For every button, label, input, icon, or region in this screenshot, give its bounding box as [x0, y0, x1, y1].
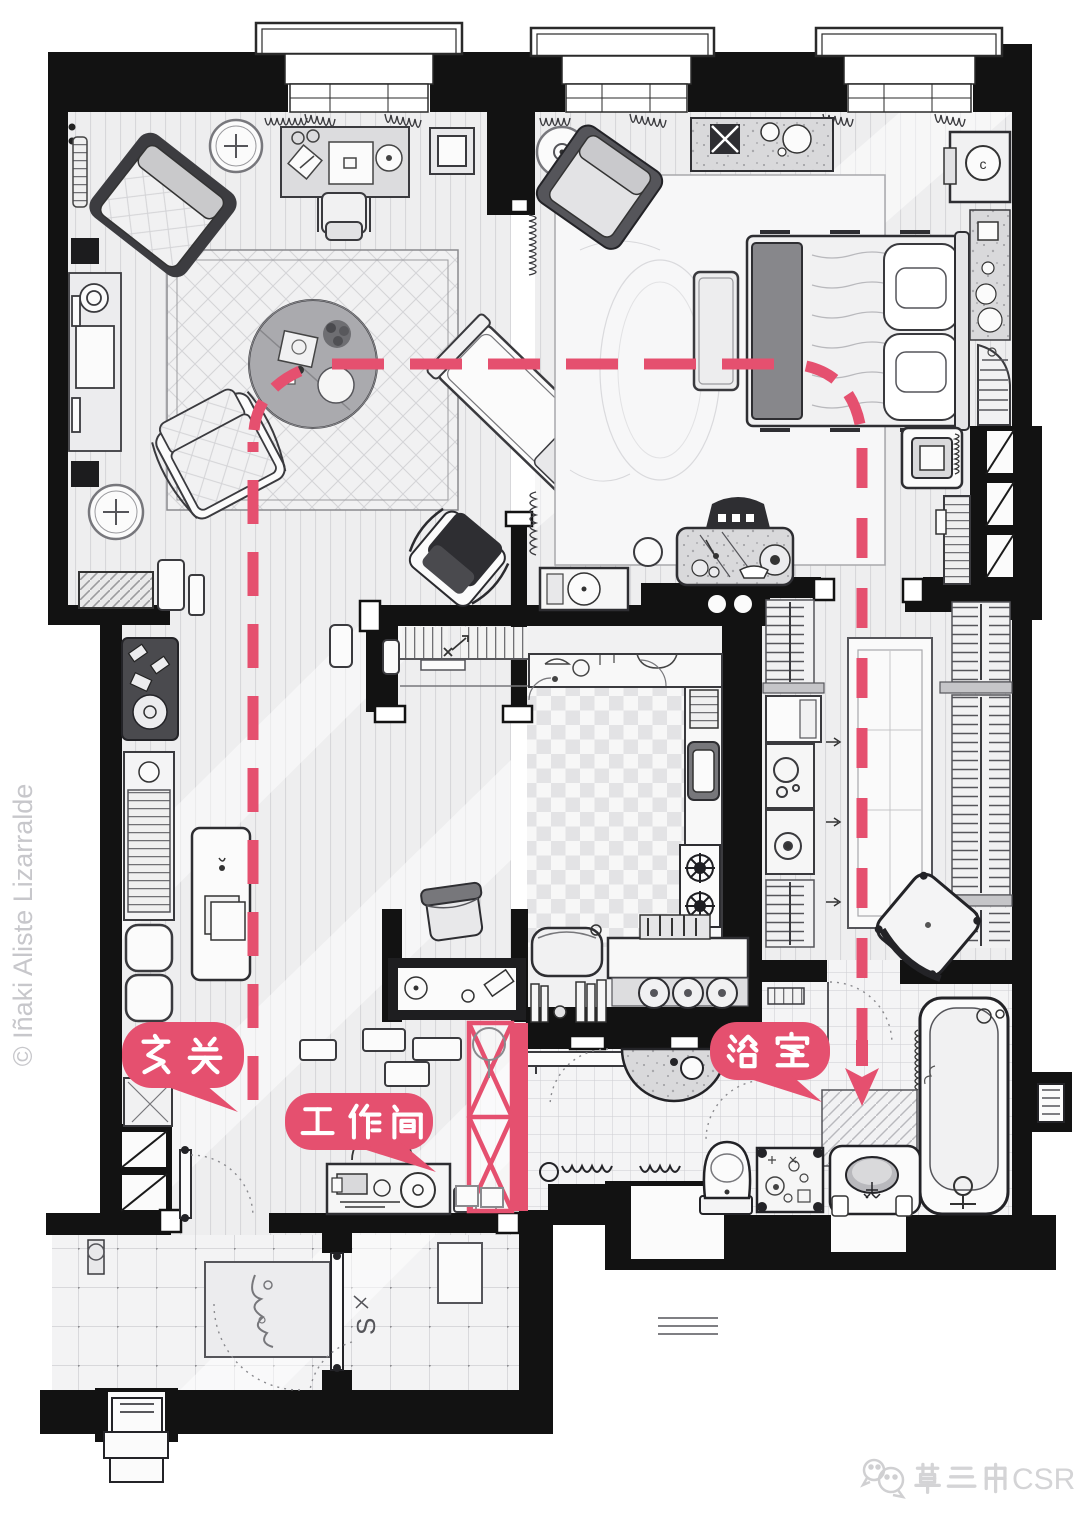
svg-text:© Iñaki Aliste Lizarralde: © Iñaki Aliste Lizarralde	[8, 784, 38, 1067]
svg-text:S: S	[351, 1318, 381, 1335]
svg-text:CSR: CSR	[1012, 1463, 1075, 1496]
svg-text:c: c	[980, 156, 987, 172]
